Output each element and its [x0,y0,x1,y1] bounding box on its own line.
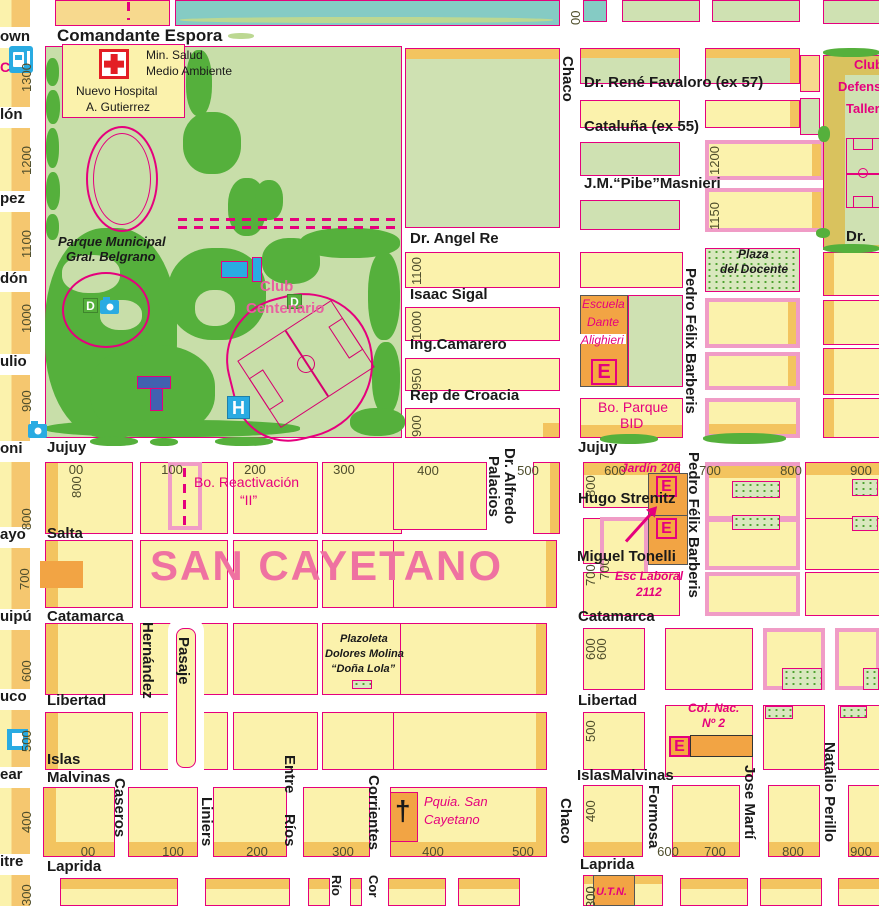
shrub-row-icon [228,33,254,39]
address-number: 1000 [20,304,33,333]
block-top-green-2 [712,0,800,22]
hospital-cross-icon [99,49,129,79]
plaza-sm-7 [765,706,793,719]
address-number: 300 [332,845,354,858]
street-band [581,49,679,58]
poi-del-docente: del Docente [720,263,788,275]
address-number: 700 [699,464,721,477]
address-number: 900 [850,464,872,477]
street-band [536,713,546,769]
poi-club-def-1: Club [854,58,879,71]
camera-icon-2 [100,300,119,314]
address-number: 400 [584,800,597,822]
orange-sq-900 [543,423,559,437]
poi-cayetano: Cayetano [424,813,480,826]
address-number: 300 [333,463,355,476]
street-band [536,788,546,856]
street-dr-cut: Dr. [846,229,866,244]
school-marker-e-dante: E [591,359,617,385]
address-number: 800 [70,476,83,498]
street-band [46,463,58,533]
block-l2 [233,712,318,770]
poi-bid: BID [620,416,643,430]
shrub-row-icon [90,437,138,446]
street-dr-alfredo: Dr. Alfredo [502,448,517,524]
block-b5 [458,878,520,906]
plaza-sm-4 [852,516,878,531]
street-band [351,879,361,889]
poi-pquia-san: Pquia. San [424,795,488,808]
shrub-row-icon [703,433,786,444]
park-trees [255,180,283,220]
street-band [790,101,799,127]
street-pasaje: Pasaje [176,637,191,685]
address-number: 100 [162,845,184,858]
address-number: 1100 [410,257,423,285]
block-sm-1 [800,55,820,92]
block-e-1 [823,252,879,296]
edge-oni: oni [0,441,23,456]
block-b2 [308,878,330,906]
address-number: 600 [595,638,608,660]
shrub-row-icon [180,17,553,23]
poi-n-2: Nº 2 [702,717,725,729]
poi-col-nac: Col. Nac. [688,702,739,714]
street-band [46,624,58,694]
address-number: 500 [584,720,597,742]
block-b1 [205,878,290,906]
street-islasmalvinas-e: IslasMalvinas [577,768,674,783]
church-cross: † [395,797,411,825]
street-comandante-espora: Comandante Espora [57,27,222,44]
address-number: 1100 [20,230,33,258]
street-pedro-felix-barberis-n: Pedro Félix Barberis [683,268,698,414]
street-band [206,879,289,889]
poi-esc-laboral: Esc Laboral [615,570,683,582]
poi-club-def-3: Taller [846,102,879,115]
street-salta: Salta [47,526,83,541]
camera-bump [103,297,110,300]
school-marker-e-colnac: E [669,736,690,757]
street-band [790,49,799,83]
street-caseros: Caseros [112,778,127,837]
park-trees [350,408,405,436]
dashed-boundary [127,2,130,20]
fuel-screen [15,55,22,60]
park-trees [46,90,60,124]
plaza-sm-3 [852,479,878,496]
street-hernandez: Hernández [140,622,155,699]
street-band [546,541,556,607]
street-rep-croacia: Rep de Croacia [410,388,519,403]
block-sm-2 [800,98,820,135]
dashed-boundary [178,218,400,221]
address-number: 900 [20,390,33,412]
address-number: 600 [20,660,33,682]
park-trees [46,172,60,210]
park-trees [183,112,241,174]
poi-dolores-molina: Dolores Molina [325,649,404,660]
block-c4 [400,623,547,695]
orange-building-1 [40,561,83,588]
block-j400 [393,462,487,530]
street-rio-cut: Río [330,875,343,896]
dashed-boundary [183,468,186,526]
address-number: 800 [780,464,802,477]
poi-bo-reactivacion: Bo. Reactivación [194,475,299,489]
street-band [839,879,879,889]
edge-ulio: ulio [0,354,27,369]
poi-jardin-206: Jardín 206 [621,462,680,474]
street-islas: Islas [47,752,80,767]
block-mt-2 [705,572,800,616]
soccer-field-icon-2 [846,138,879,208]
street-hugo-strenitz: Hugo Strenitz [578,491,676,506]
street-band [389,879,445,889]
street-band [681,879,747,889]
plaza-sm-6 [863,668,879,690]
block-b8 [838,878,879,906]
shrub-row-icon [215,437,273,446]
street-entre: Entre [282,755,297,793]
street-band [812,144,821,176]
edge-ear: ear [0,767,23,782]
street-formosa: Formosa [646,785,661,848]
plaza-sm-1 [732,481,780,498]
street-band [536,624,546,694]
poi-club: Club [260,279,293,294]
street-band [550,463,559,533]
poi-bo-reactivacion-ii: “II” [240,493,257,507]
block-e-3 [823,348,879,395]
pool-1 [221,261,248,278]
plaza-sm-8 [840,706,867,718]
street-band [459,879,519,889]
neighborhood-label-san-cayetano: SAN CAYETANO [150,545,503,587]
street-band [788,302,796,344]
block-1200 [705,140,825,180]
block-1100 [405,252,560,288]
street-isaac-sigal: Isaac Sigal [410,287,488,302]
block-e-4 [823,398,879,438]
block-mid-green [405,48,560,228]
edge-itre: itre [0,854,23,869]
poi-parque-municipal: Parque Municipal [58,235,166,248]
block-top-teal-2 [583,0,607,22]
street-natalio-perillo: Natalio Perillo [822,742,837,842]
block-l4 [393,712,547,770]
poi-plazoleta: Plazoleta [340,634,388,645]
poi-c-cut: C [0,60,10,74]
plaza-plazoleta [352,680,372,689]
address-number: 700 [704,845,726,858]
block-pfb-1 [705,298,800,348]
plaza-sm-2 [732,515,780,530]
address-number: 400 [422,845,444,858]
street-band [706,49,799,58]
poi-alighieri: Alighieri [581,334,624,346]
address-number: 400 [417,464,439,477]
address-number: 1150 [708,202,721,230]
block-j00 [45,462,133,534]
street-band [761,879,821,889]
street-band [824,301,834,344]
street-jose-marti: Jose Martí [742,765,757,839]
street-angel-re: Dr. Angel Re [410,231,499,246]
poi-centenario: Centenario [246,301,324,316]
address-number: 800 [782,845,804,858]
street-laprida-w: Laprida [47,859,101,874]
street-favaloro: Dr. René Favaloro (ex 57) [584,75,763,90]
address-number: 1300 [20,63,33,92]
street-band [824,253,834,295]
sports-marker-d: D [83,298,98,313]
street-band [61,879,177,889]
block-m0 [43,787,115,857]
block-mt-3 [805,572,879,616]
block-sigal-e [580,252,683,288]
block-b6 [680,878,748,906]
edge-don: dón [0,271,28,286]
edge-pez: pez [0,191,25,206]
edge-ayo: ayo [0,527,26,542]
block-b0 [60,878,178,906]
shrub-row-icon [150,438,178,446]
street-rios: Ríos [282,814,297,847]
hospital-marker-h: H [227,396,250,419]
shrub-row-icon [823,244,879,253]
address-number: 1200 [20,146,33,175]
block-top-left [55,0,170,26]
street-masnieri: J.M.“Pibe”Masnieri [584,176,721,191]
park-trees [46,128,59,168]
camera-icon [28,424,47,438]
poi-club-def-2: Defensores [838,80,879,93]
poi-escuela: Escuela [582,298,625,310]
school-marker-e-laboral: E [656,518,677,539]
shrub-row-icon [823,48,879,57]
street-corrientes: Corrientes [366,775,381,850]
cross-h [104,61,124,68]
poi-min-salud: Min. Salud [146,49,203,61]
block-e-2 [823,300,879,345]
poi-2112: 2112 [636,586,662,598]
address-number: 300 [20,884,33,906]
block-b7 [760,878,822,906]
street-band [824,399,834,437]
street-cataluna: Cataluña (ex 55) [584,119,699,134]
street-band [812,192,821,228]
poi-dona-lola: “Doña Lola” [331,664,395,675]
camera-lens [34,428,41,435]
plaza-sm-5 [782,668,822,690]
address-number: 900 [850,845,872,858]
street-jujuy-w: Jujuy [47,440,86,455]
block-top-green-1 [622,0,700,22]
address-number: 00 [81,845,95,858]
street-chaco-n: Chaco [560,56,575,102]
address-number: 700 [18,568,31,590]
block-c2 [233,623,318,695]
address-number: 700 [584,564,597,586]
address-number: 500 [512,845,534,858]
athletics-track-inner [93,133,151,225]
edge-own: own [0,29,30,44]
poi-utn: U.T.N. [596,887,627,898]
col-nac-building [690,735,753,757]
street-laprida-e: Laprida [580,857,634,872]
park-clearing [195,290,235,326]
block-1150 [705,188,825,232]
poi-plaza: Plaza [738,248,769,260]
block-b3 [350,878,362,906]
street-band [44,842,114,856]
street-libertad-e: Libertad [578,693,637,708]
street-band [788,356,796,386]
camera-lens [106,304,113,311]
street-miguel-tonelli: Miguel Tonelli [577,549,676,564]
street-malvinas: Malvinas [47,770,110,785]
street-band [584,842,642,856]
street-ing-camarero: Ing.Camarero [410,337,507,352]
address-number: 00 [569,11,582,25]
address-number: 900 [410,415,423,437]
poi-gral-belgrano: Gral. Belgrano [66,250,156,263]
shrub-row-icon [818,126,830,142]
street-liniers: Liniers [199,797,214,846]
address-number: 200 [246,845,268,858]
block-angelre-w [580,200,680,230]
address-number: 500 [20,730,33,752]
block-900 [405,408,560,438]
poi-a-gutierrez: A. Gutierrez [86,101,150,113]
block-pfb-2 [705,352,800,390]
address-number: 1200 [708,146,721,175]
building-2 [150,388,163,411]
street-chaco-s: Chaco [558,798,573,844]
block-top-green-3 [823,0,879,24]
poi-bo-parque: Bo. Parque [598,400,668,414]
dashed-boundary [178,226,400,229]
street-band [406,49,559,59]
park-trees [372,342,400,414]
block-c6 [665,628,753,690]
map-canvas[interactable]: HDDEEEE 00100200300400500600700800900001… [0,0,879,906]
camera-bump [31,421,38,424]
block-masnieri-w [580,142,680,176]
street-pedro-felix-barberis-s: Pedro Félix Barberis [686,452,701,598]
address-number: 500 [517,464,539,477]
edge-uco: uco [0,689,27,704]
street-band [824,349,834,394]
street-cor-cut: Cor [367,875,380,897]
block-c0 [45,623,133,695]
street-band [309,879,329,889]
park-trees [368,252,400,340]
escuela-dante-green [628,295,683,387]
edge-lon: lón [0,107,23,122]
poi-medio-ambiente: Medio Ambiente [146,65,232,77]
block-pfb-3 [705,398,800,438]
park-trees [46,58,59,86]
street-catamarca-e: Catamarca [578,609,655,624]
poi-nuevo-hospital: Nuevo Hospital [76,85,157,97]
block-cataluna-e [705,100,800,128]
block-b4 [388,878,446,906]
street-libertad-w: Libertad [47,693,106,708]
street-jujuy-e: Jujuy [578,440,617,455]
shrub-row-icon [816,228,830,238]
street-catamarca-w: Catamarca [47,609,124,624]
address-number: 00 [69,463,83,476]
address-number: 100 [161,463,183,476]
edge-uipu: uipú [0,609,32,624]
block-l3 [322,712,402,770]
poi-dante: Dante [587,316,619,328]
street-palacios: Palacios [486,456,501,517]
address-number: 400 [20,811,33,833]
